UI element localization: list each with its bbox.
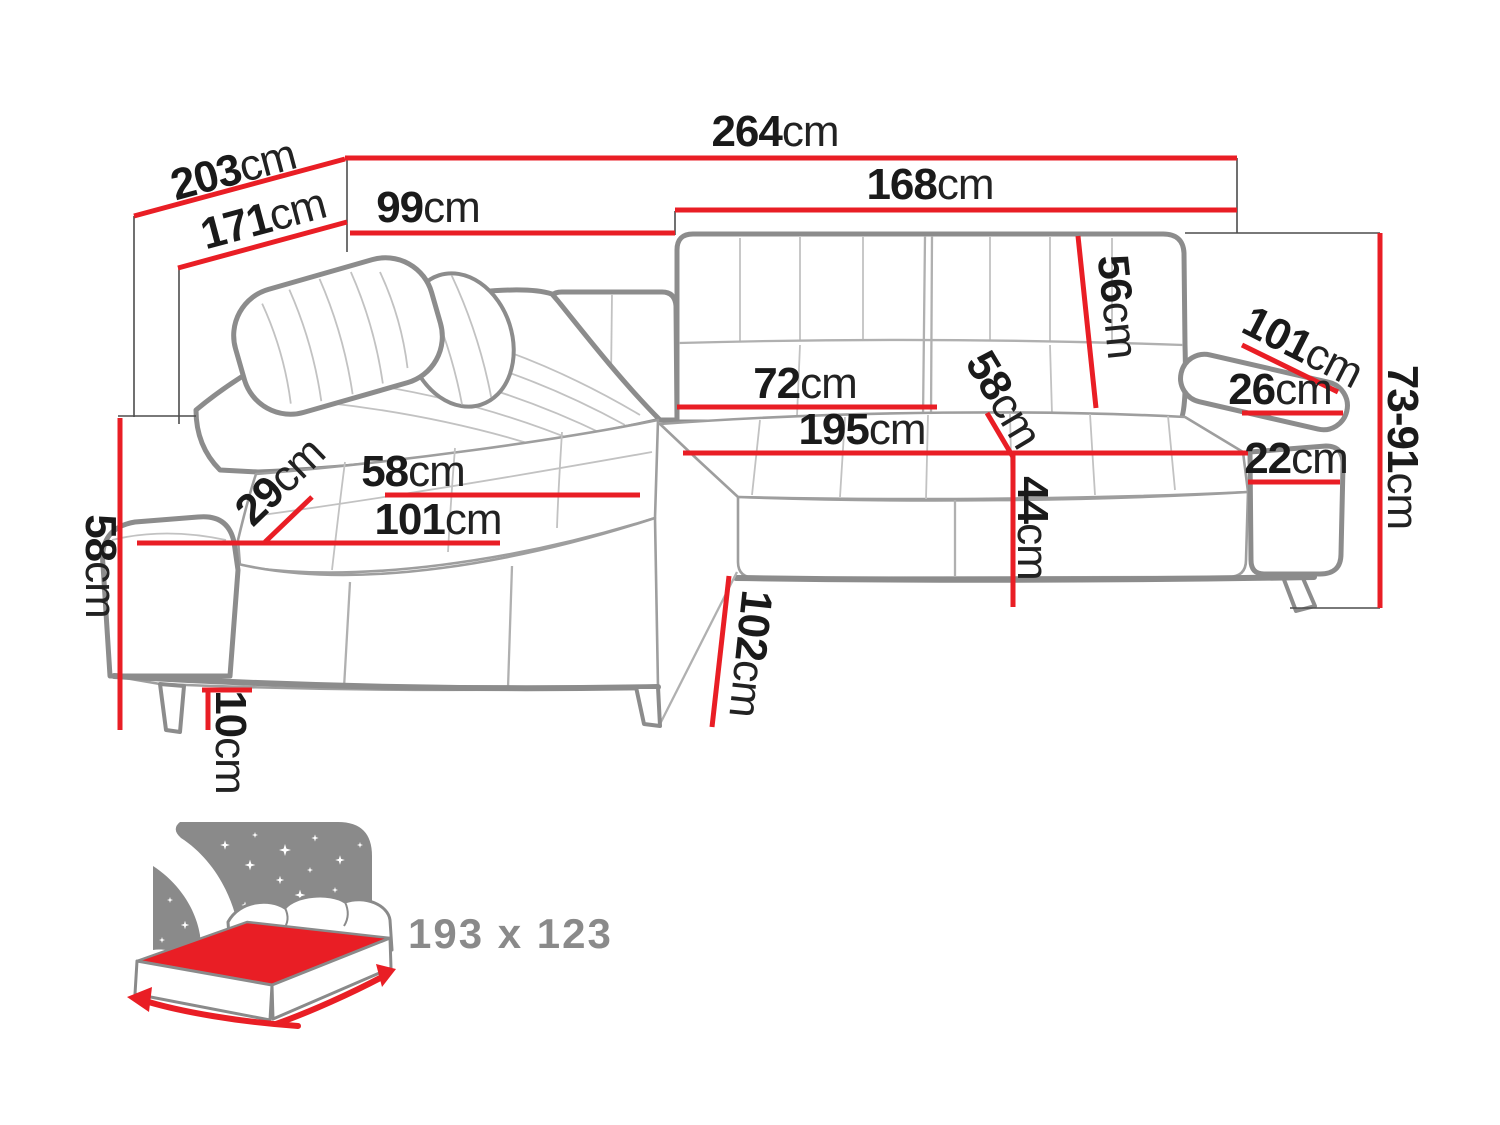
dim-label-26: 26cm: [1228, 365, 1332, 414]
dim-label-195: 195cm: [798, 405, 925, 454]
front-left-leg: [160, 684, 184, 732]
diagram-canvas: 203cm 171cm 264cm 99cm 168cm 56cm 101cm …: [0, 0, 1500, 1125]
dim-label-101-left: 101cm: [374, 495, 501, 544]
mattress-arrow-depth-head: [376, 964, 396, 987]
dim-label-58-height: 58cm: [76, 514, 125, 618]
dim-label-44: 44cm: [1008, 476, 1057, 580]
dim-label-264: 264cm: [711, 107, 838, 156]
front-right-leg: [636, 687, 660, 726]
main-seat: [660, 412, 1248, 499]
dim-label-10: 10cm: [206, 690, 255, 794]
dim-label-58-chaise: 58cm: [361, 447, 465, 496]
dim-label-168: 168cm: [866, 160, 993, 209]
right-leg: [1283, 576, 1315, 611]
sleeping-function-icon: 193 x 123: [127, 822, 613, 1026]
dim-label-102: 102cm: [719, 588, 781, 720]
dim-label-22: 22cm: [1244, 434, 1348, 483]
dim-label-73-91: 73-91cm: [1378, 365, 1427, 529]
sleeping-area-label: 193 x 123: [408, 910, 613, 957]
dim-label-72: 72cm: [753, 359, 857, 408]
sofa-dimension-diagram: 203cm 171cm 264cm 99cm 168cm 56cm 101cm …: [0, 0, 1500, 1125]
dim-label-99: 99cm: [376, 183, 480, 232]
main-front-face: [738, 492, 1248, 578]
